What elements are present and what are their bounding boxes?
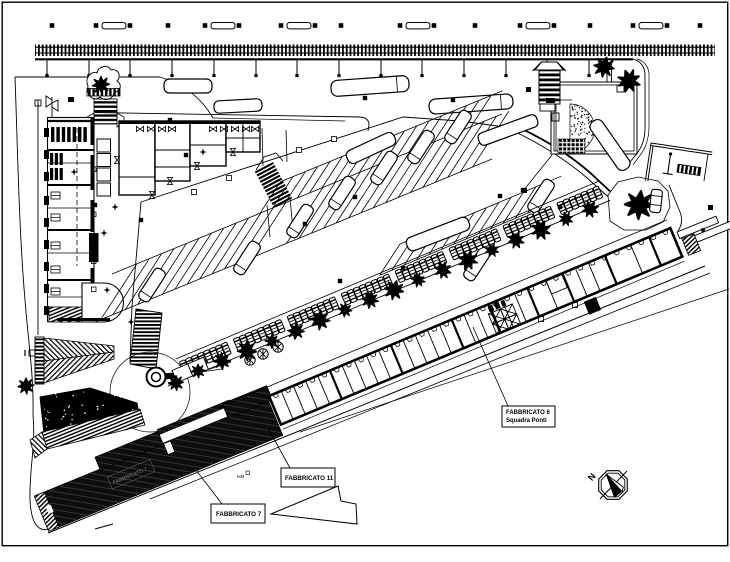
svg-text:FABBRICATO 11: FABBRICATO 11 [285, 475, 334, 482]
svg-text:FABBRICATO 6: FABBRICATO 6 [506, 410, 550, 416]
svg-text:FABBRICATO 7: FABBRICATO 7 [216, 511, 262, 518]
svg-text:Squadra Ponti: Squadra Ponti [506, 418, 547, 424]
svg-text:IsM: IsM [237, 474, 245, 479]
